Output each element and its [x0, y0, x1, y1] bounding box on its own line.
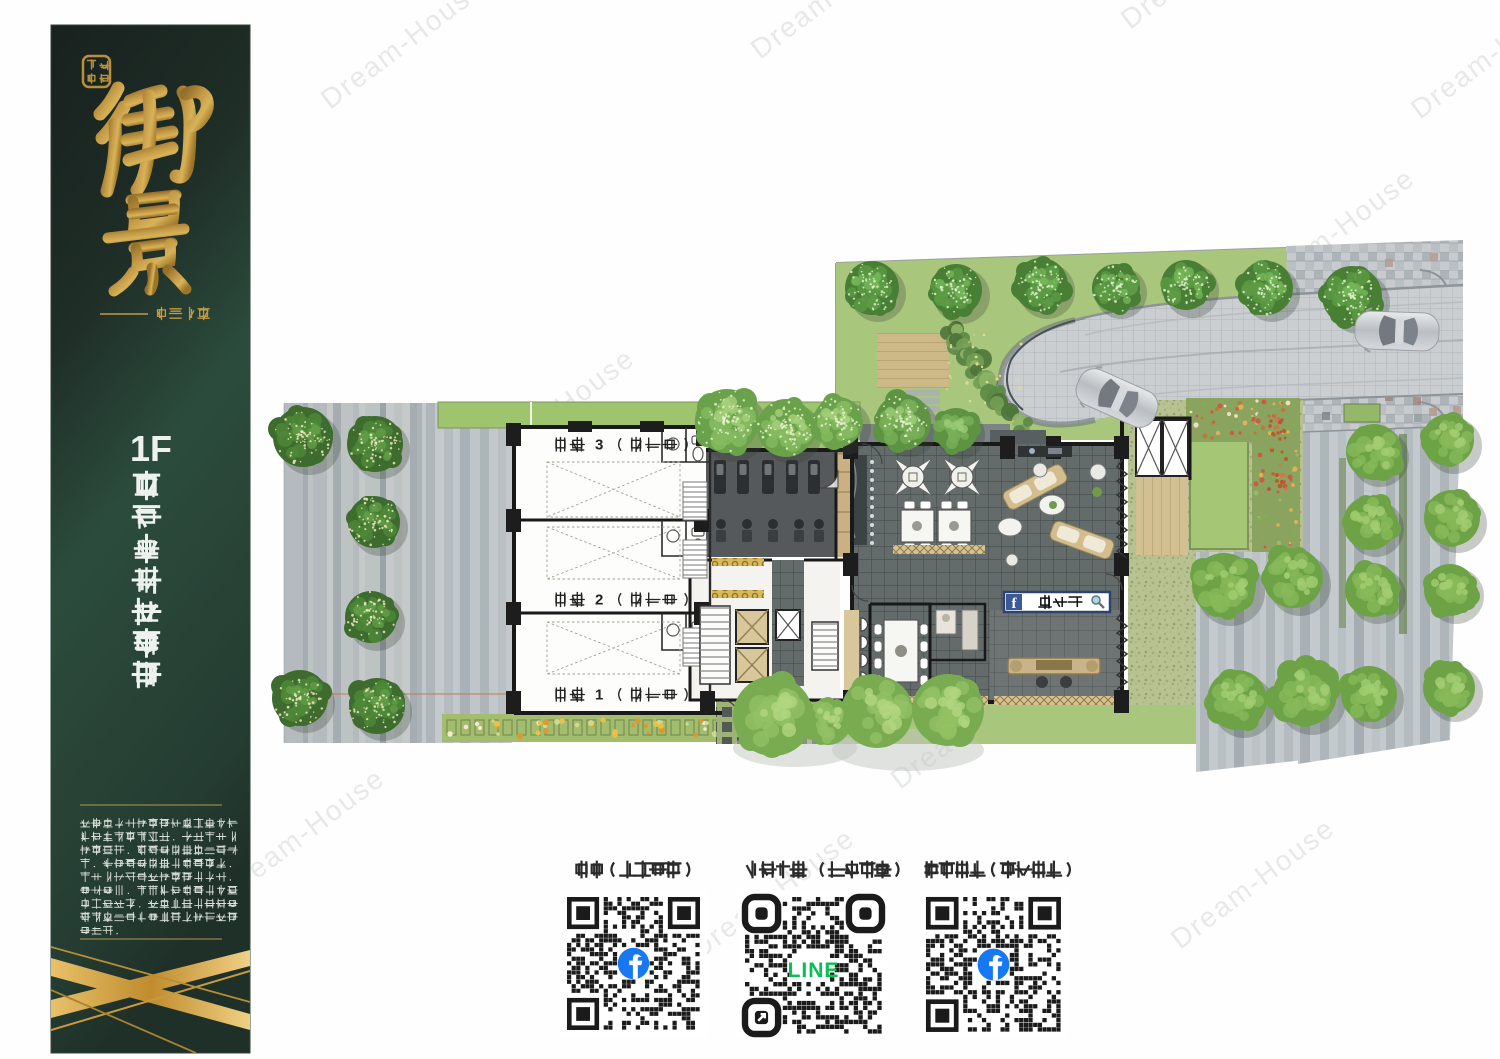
svg-text:LINE: LINE: [788, 959, 840, 982]
svg-text:1F: 1F: [130, 428, 172, 469]
svg-text:3: 3: [595, 436, 603, 453]
svg-text:2: 2: [595, 591, 603, 608]
svg-text:1: 1: [595, 686, 603, 703]
